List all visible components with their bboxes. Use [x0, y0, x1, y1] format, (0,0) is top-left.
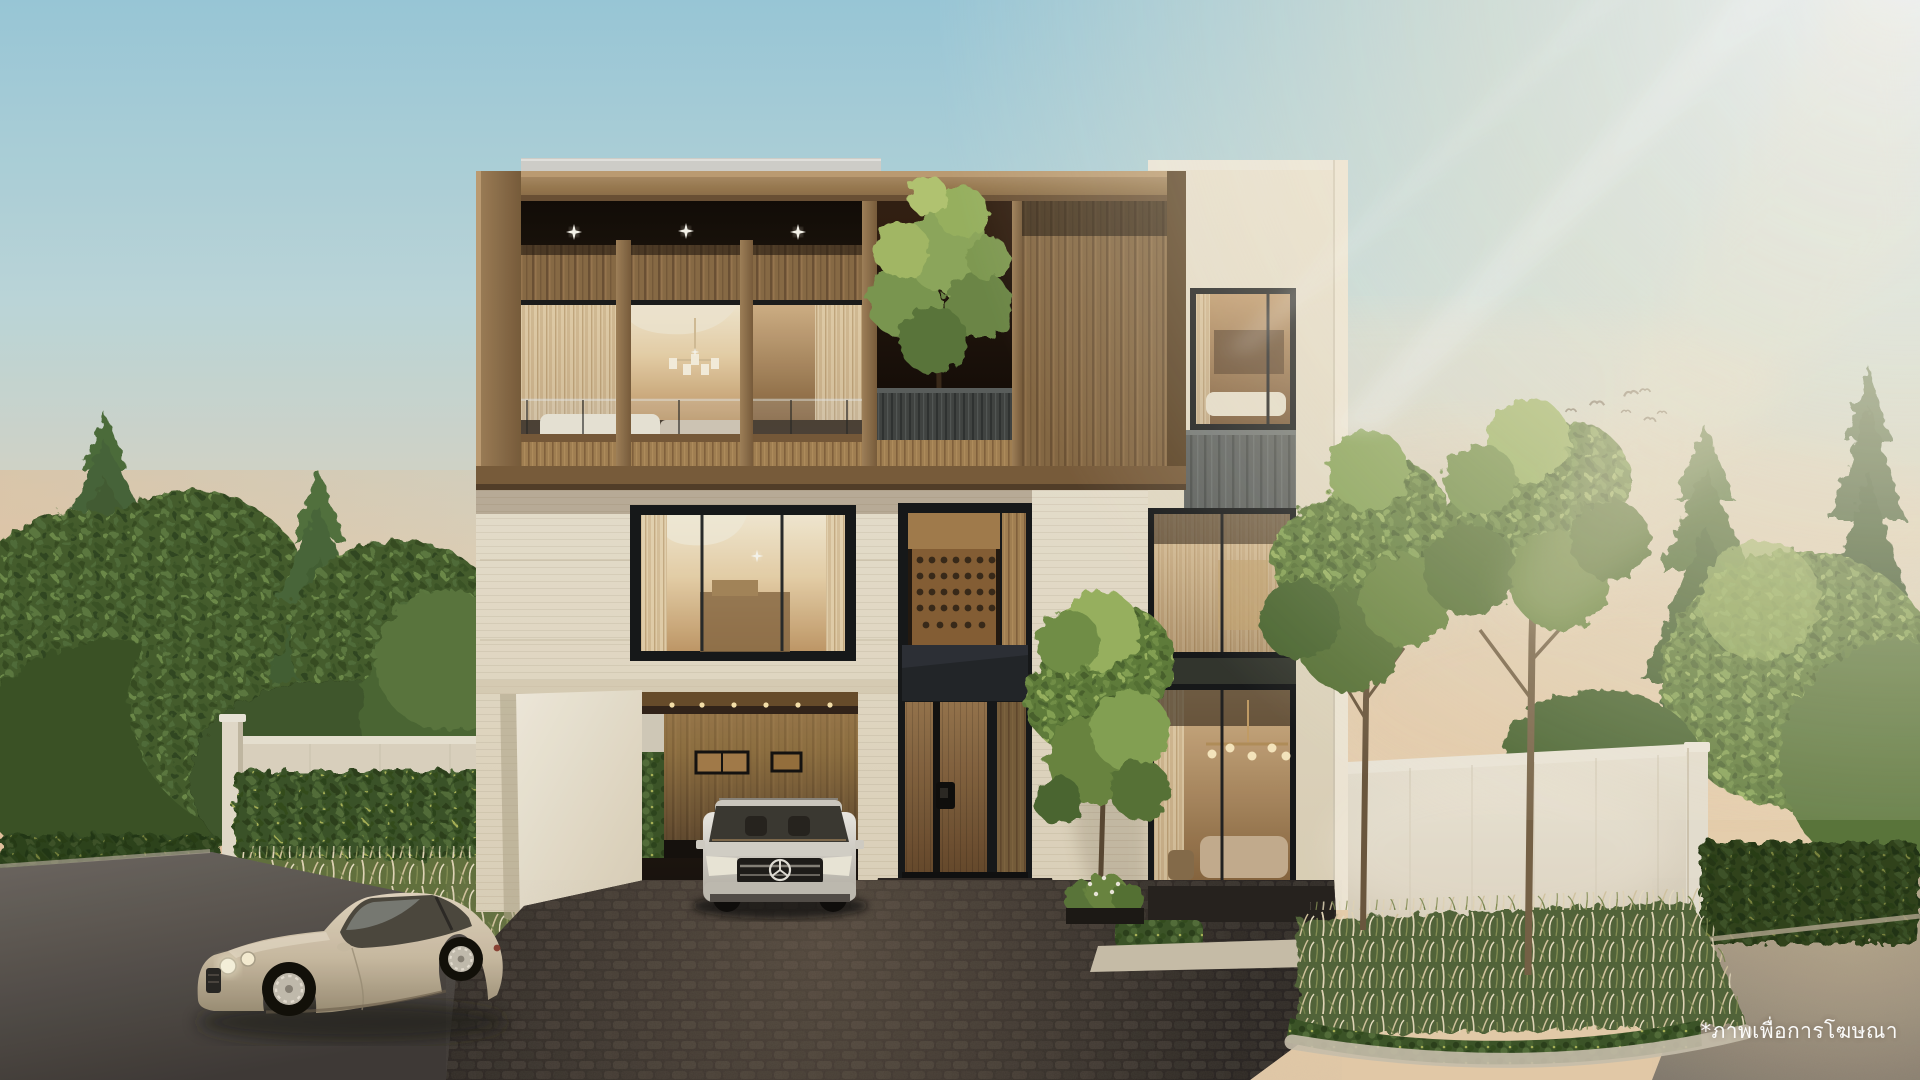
- render-canvas: [0, 0, 1920, 1080]
- color-grade: [0, 0, 1920, 1080]
- watermark-text: *ภาพเพื่อการโฆษณา: [1701, 1019, 1898, 1044]
- architectural-rendering: *ภาพเพื่อการโฆษณา: [0, 0, 1920, 1080]
